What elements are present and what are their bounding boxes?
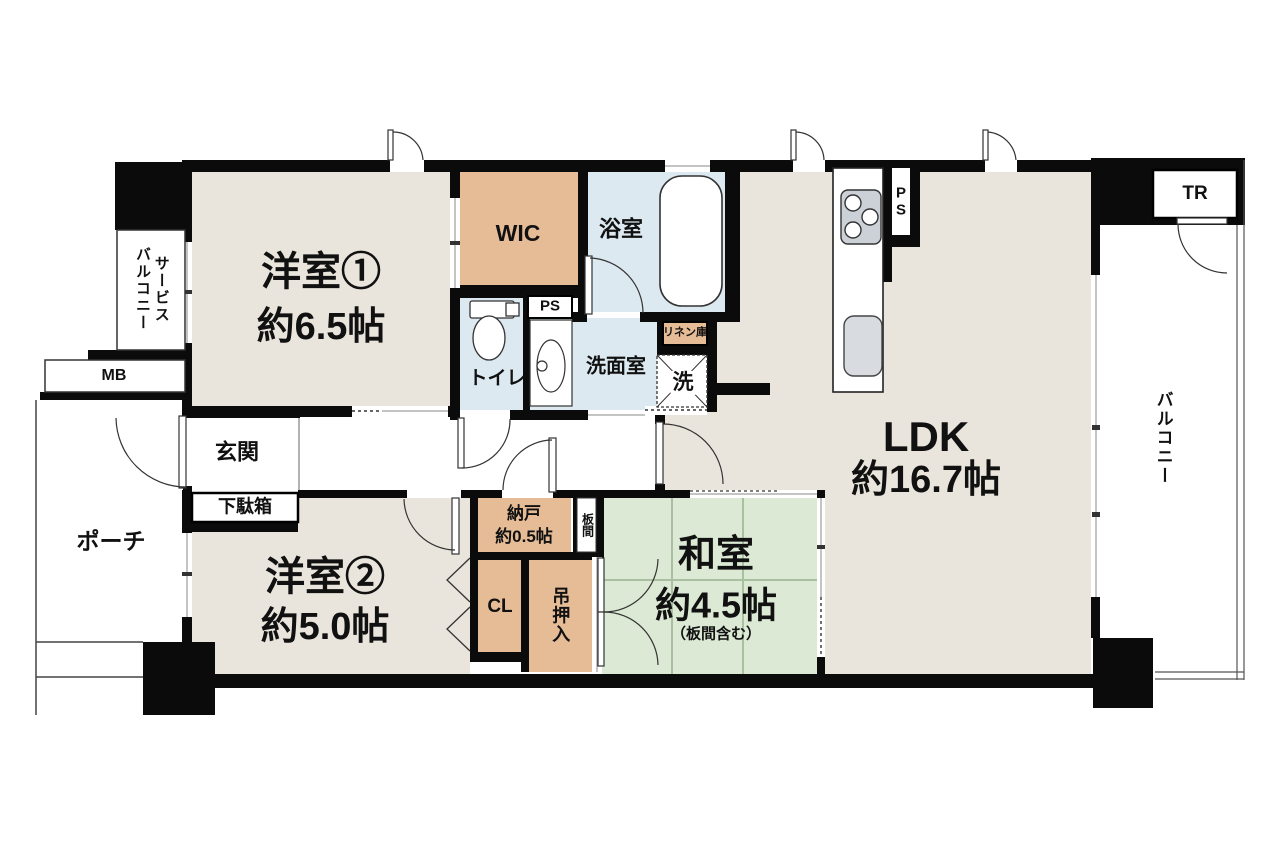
label-tr: TR [1182, 183, 1207, 205]
label-washitsu-size: 約4.5帖 [655, 584, 777, 625]
floor-plan-drawing [0, 0, 1280, 850]
label-ps: PS [540, 297, 560, 314]
label-washer: 洗 [671, 371, 696, 395]
label-western1-size: 約6.5帖 [257, 306, 386, 350]
floor-plan: 洋室① 約6.5帖 WIC 浴室 PS トイレ 洗面室 リネン庫 洗 LDK 約… [0, 0, 1280, 850]
washbasin [530, 320, 572, 406]
label-ps-kitchen: P S [896, 186, 906, 219]
label-linen: リネン庫 [663, 327, 707, 340]
label-service-balcony: サービス バルコニー [132, 247, 170, 332]
label-washitsu-name: 和室 [678, 534, 754, 578]
label-cl: CL [487, 596, 512, 618]
porch-outline [36, 400, 143, 715]
label-nando-name: 納戸 [507, 504, 541, 524]
label-ldk-name: LDK [883, 413, 969, 461]
label-mb: MB [102, 367, 127, 385]
kitchen-counter [833, 168, 883, 392]
label-ldk-size: 約16.7帖 [851, 459, 1001, 503]
bathtub [660, 176, 722, 306]
label-toilet: トイレ [468, 368, 525, 390]
room-ldk-floor-mid [717, 312, 1091, 412]
label-washitsu-note: （板間含む） [671, 625, 761, 642]
label-wic: WIC [496, 220, 541, 246]
label-genkan: 玄関 [215, 439, 259, 464]
label-getabako: 下駄箱 [218, 497, 272, 518]
label-senmen: 洗面室 [586, 356, 646, 379]
label-tsurioshiire: 吊押入 [549, 587, 572, 644]
label-nando-size: 約0.5帖 [495, 527, 553, 547]
label-balcony: バルコニー [1152, 391, 1173, 486]
label-western2-name: 洋室② [265, 554, 385, 600]
label-itanoma: 板間 [580, 513, 595, 537]
label-porch: ポーチ [77, 528, 146, 554]
label-bath: 浴室 [599, 216, 643, 241]
label-western2-size: 約5.0帖 [261, 606, 390, 650]
label-western1-name: 洋室① [261, 249, 381, 295]
kitchen-sink [844, 316, 882, 376]
